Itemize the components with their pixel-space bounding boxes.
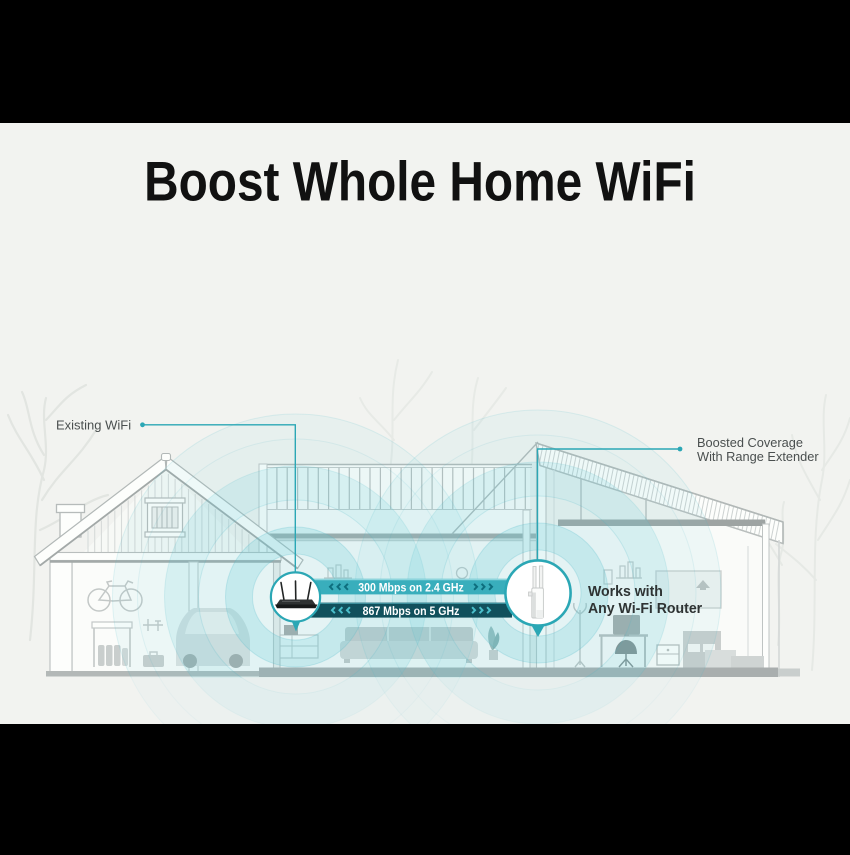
svg-text:Existing WiFi: Existing WiFi bbox=[56, 418, 131, 433]
svg-text:867 Mbps on 5 GHz: 867 Mbps on 5 GHz bbox=[363, 605, 460, 618]
svg-text:With Range Extender: With Range Extender bbox=[697, 449, 819, 464]
svg-text:300 Mbps on 2.4 GHz: 300 Mbps on 2.4 GHz bbox=[358, 582, 464, 595]
svg-text:Boost Whole Home WiFi: Boost Whole Home WiFi bbox=[144, 150, 696, 212]
svg-text:Boosted Coverage: Boosted Coverage bbox=[697, 435, 803, 450]
svg-text:Works with: Works with bbox=[588, 584, 663, 600]
svg-text:Any Wi-Fi Router: Any Wi-Fi Router bbox=[588, 601, 702, 617]
